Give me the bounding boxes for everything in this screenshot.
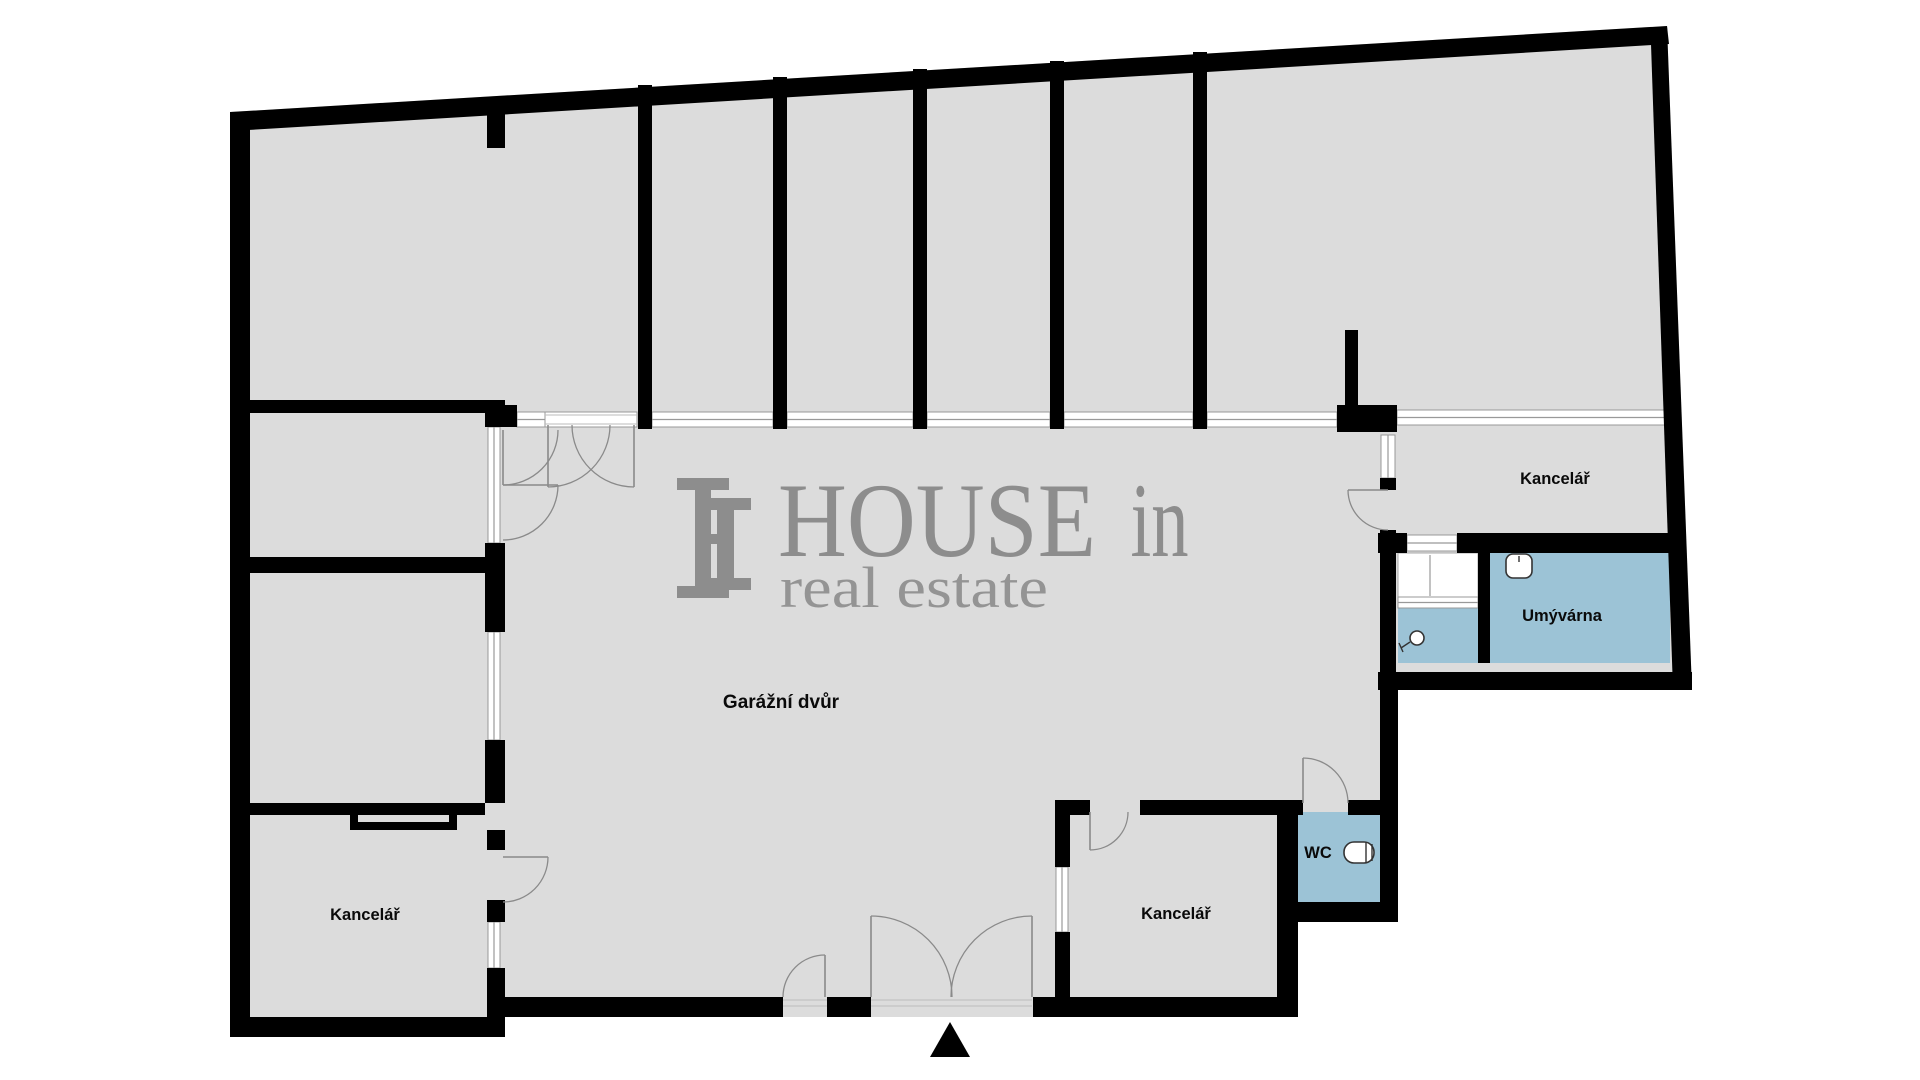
wall-bottom-left-outer bbox=[230, 1017, 505, 1037]
brand-suffix-text: in bbox=[1131, 462, 1189, 579]
brand-tagline-text: real estate bbox=[780, 555, 1048, 620]
room-label-garage-yard: Garážní dvůr bbox=[723, 692, 840, 713]
room-label-office-top-right: Kancelář bbox=[1520, 470, 1590, 488]
floor-plan-page: HOUSE in real estate bbox=[0, 0, 1920, 1080]
room-label-office-bottom-left: Kancelář bbox=[330, 906, 400, 924]
garage-north-door-opening bbox=[545, 412, 637, 427]
wall-wc-bottom bbox=[1288, 902, 1398, 922]
room-label-wc: WC bbox=[1304, 844, 1332, 862]
toilet-icon-washroom bbox=[1506, 554, 1532, 578]
entrance-marker-icon bbox=[930, 1022, 970, 1057]
toilet-icon-wc bbox=[1344, 842, 1374, 863]
floor-plan-drawing: HOUSE in real estate bbox=[0, 0, 1920, 1080]
room-label-office-bottom-middle: Kancelář bbox=[1141, 905, 1211, 923]
wall-wc-west bbox=[1277, 812, 1298, 1017]
wall-washroom-bottom bbox=[1378, 672, 1692, 690]
wall-left-outer bbox=[230, 112, 250, 1037]
light-well bbox=[1398, 553, 1478, 597]
room-label-washroom: Umývárna bbox=[1522, 607, 1603, 625]
